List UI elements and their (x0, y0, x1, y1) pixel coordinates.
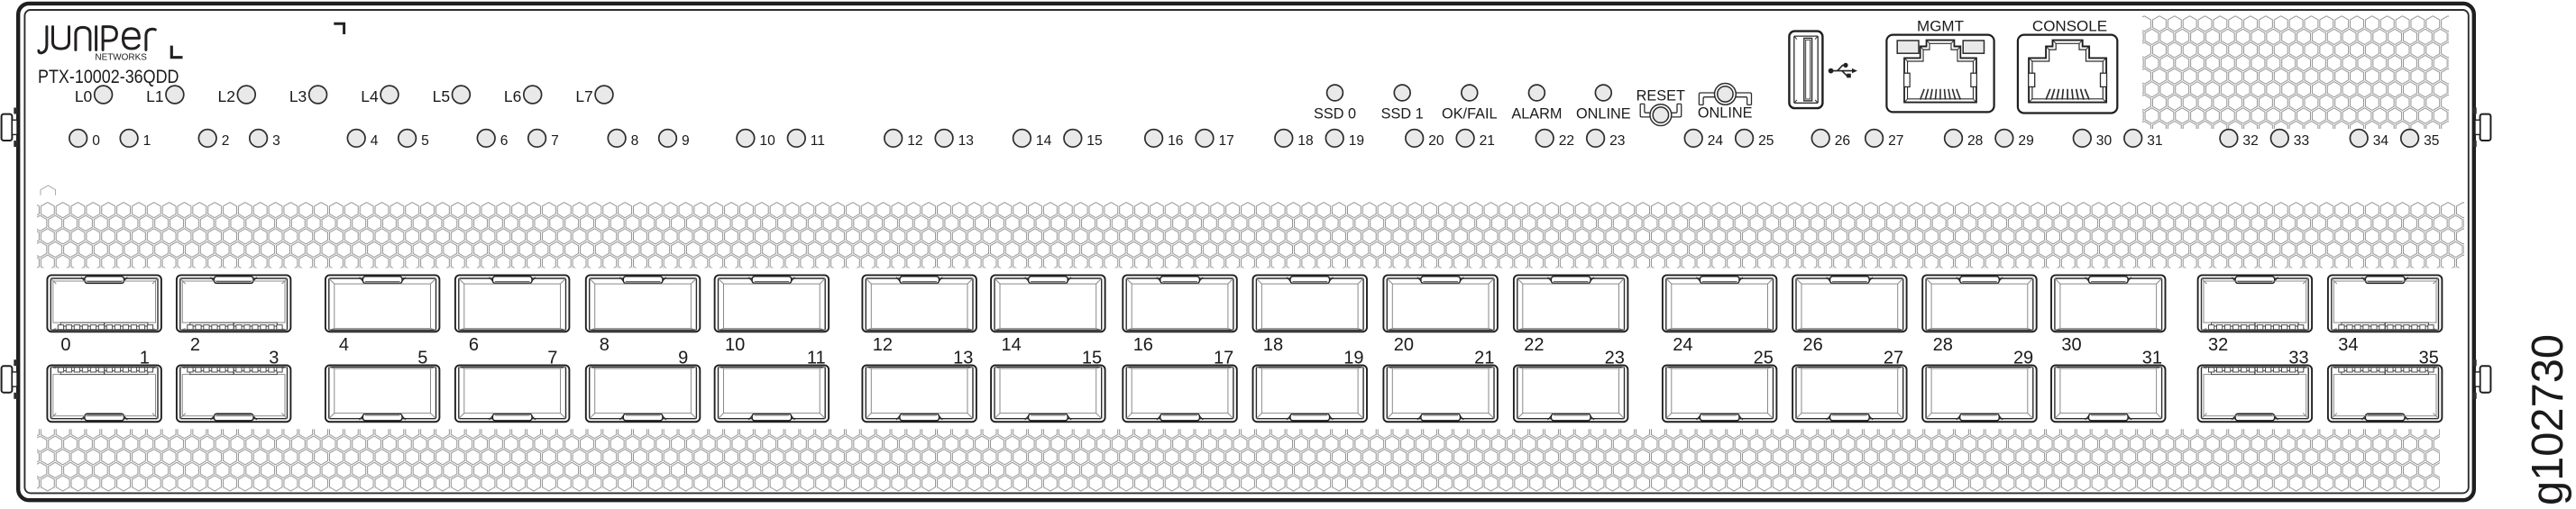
svg-text:9: 9 (678, 349, 688, 368)
svg-text:1: 1 (143, 133, 151, 149)
svg-text:L2: L2 (218, 87, 235, 105)
svg-text:8: 8 (600, 335, 610, 355)
svg-text:L5: L5 (433, 87, 450, 105)
svg-text:35: 35 (2419, 349, 2439, 368)
svg-text:14: 14 (1002, 335, 1022, 355)
svg-text:7: 7 (551, 133, 559, 149)
svg-text:30: 30 (2096, 133, 2113, 149)
svg-text:35: 35 (2424, 133, 2440, 149)
svg-text:0: 0 (60, 335, 70, 355)
svg-text:12: 12 (873, 335, 893, 355)
svg-text:0: 0 (92, 133, 100, 149)
svg-text:g102730: g102730 (2524, 334, 2572, 505)
svg-text:NETWORKS: NETWORKS (95, 52, 147, 62)
svg-text:L4: L4 (361, 87, 379, 105)
svg-text:5: 5 (421, 133, 429, 149)
svg-text:13: 13 (953, 349, 973, 368)
svg-text:1: 1 (140, 349, 150, 368)
svg-text:L7: L7 (575, 87, 592, 105)
svg-text:19: 19 (1349, 133, 1364, 149)
svg-text:CONSOLE: CONSOLE (2032, 18, 2107, 35)
svg-text:26: 26 (1803, 335, 1823, 355)
svg-text:SSD 1: SSD 1 (1381, 105, 1424, 122)
svg-text:11: 11 (811, 133, 825, 149)
svg-text:12: 12 (907, 133, 922, 149)
svg-text:33: 33 (2288, 349, 2308, 368)
svg-text:ONLINE: ONLINE (1698, 105, 1753, 121)
svg-text:23: 23 (1609, 133, 1625, 149)
svg-text:15: 15 (1082, 349, 1102, 368)
svg-text:31: 31 (2147, 133, 2162, 149)
svg-text:33: 33 (2294, 133, 2309, 149)
svg-text:30: 30 (2061, 335, 2081, 355)
svg-text:11: 11 (807, 349, 826, 368)
svg-text:27: 27 (1888, 133, 1903, 149)
svg-text:17: 17 (1214, 349, 1233, 368)
svg-text:22: 22 (1524, 335, 1544, 355)
svg-text:18: 18 (1297, 133, 1313, 149)
svg-text:6: 6 (469, 335, 479, 355)
svg-text:8: 8 (631, 133, 639, 149)
svg-text:15: 15 (1086, 133, 1103, 149)
svg-text:26: 26 (1835, 133, 1850, 149)
svg-text:ONLINE: ONLINE (1576, 105, 1631, 122)
svg-text:L6: L6 (504, 87, 521, 105)
svg-text:18: 18 (1263, 335, 1283, 355)
svg-text:24: 24 (1673, 335, 1692, 355)
svg-text:ALARM: ALARM (1511, 105, 1562, 122)
svg-text:13: 13 (958, 133, 974, 149)
svg-text:L0: L0 (75, 87, 93, 105)
svg-text:5: 5 (417, 349, 427, 368)
svg-text:3: 3 (269, 349, 279, 368)
svg-text:PTX-10002-36QDD: PTX-10002-36QDD (38, 66, 179, 87)
svg-text:L3: L3 (289, 87, 307, 105)
svg-text:OK/FAIL: OK/FAIL (1442, 105, 1498, 122)
svg-text:28: 28 (1967, 133, 1983, 149)
svg-text:14: 14 (1036, 133, 1052, 149)
svg-text:34: 34 (2338, 335, 2358, 355)
svg-text:23: 23 (1605, 349, 1625, 368)
svg-text:3: 3 (272, 133, 280, 149)
svg-text:10: 10 (725, 335, 745, 355)
svg-text:25: 25 (1754, 349, 1774, 368)
svg-text:31: 31 (2142, 349, 2162, 368)
svg-text:29: 29 (2013, 349, 2033, 368)
svg-text:24: 24 (1708, 133, 1724, 149)
svg-text:21: 21 (1474, 349, 1494, 368)
svg-text:9: 9 (682, 133, 690, 149)
svg-text:17: 17 (1219, 133, 1234, 149)
svg-text:20: 20 (1428, 133, 1444, 149)
svg-text:4: 4 (371, 133, 379, 149)
svg-text:32: 32 (2242, 133, 2258, 149)
svg-text:34: 34 (2373, 133, 2389, 149)
svg-text:25: 25 (1758, 133, 1774, 149)
svg-text:19: 19 (1343, 349, 1363, 368)
svg-text:27: 27 (1884, 349, 1903, 368)
svg-text:RESET: RESET (1636, 87, 1685, 104)
svg-text:2: 2 (190, 335, 200, 355)
svg-text:L1: L1 (146, 87, 163, 105)
svg-text:MGMT: MGMT (1917, 18, 1964, 35)
svg-text:10: 10 (759, 133, 775, 149)
svg-text:16: 16 (1168, 133, 1183, 149)
svg-text:29: 29 (2018, 133, 2033, 149)
svg-text:7: 7 (547, 349, 557, 368)
svg-text:32: 32 (2208, 335, 2228, 355)
svg-text:28: 28 (1933, 335, 1953, 355)
svg-text:22: 22 (1559, 133, 1574, 149)
svg-text:20: 20 (1394, 335, 1414, 355)
svg-text:SSD 0: SSD 0 (1314, 105, 1356, 122)
svg-text:6: 6 (500, 133, 509, 149)
svg-text:16: 16 (1133, 335, 1153, 355)
svg-text:2: 2 (222, 133, 230, 149)
svg-text:4: 4 (339, 335, 349, 355)
svg-text:21: 21 (1480, 133, 1495, 149)
